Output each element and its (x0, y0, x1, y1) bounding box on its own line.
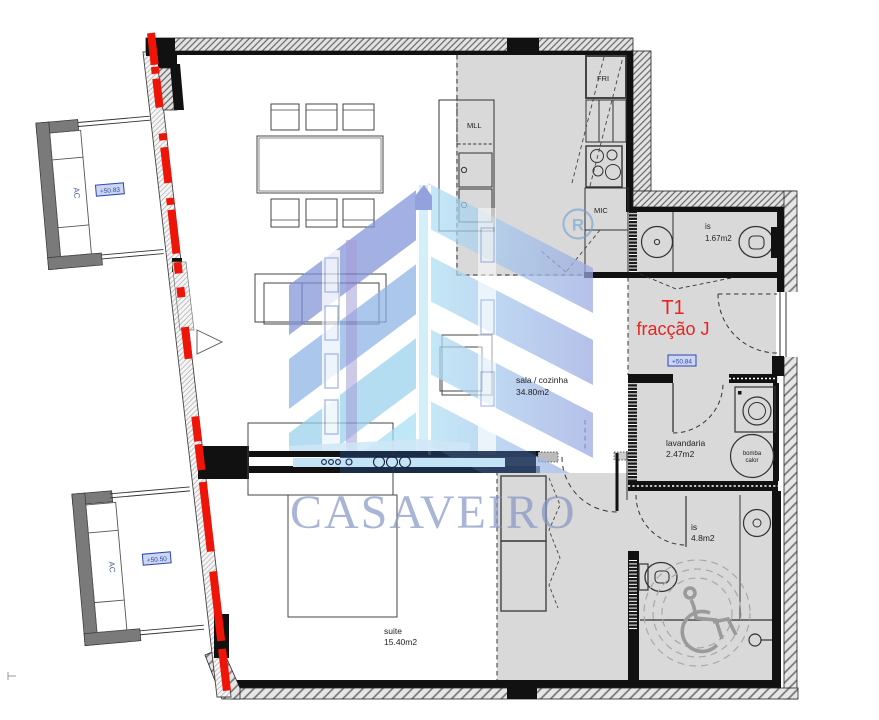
svg-text:MLL: MLL (467, 121, 482, 130)
svg-text:MIC: MIC (594, 206, 608, 215)
svg-text:4.8m2: 4.8m2 (691, 533, 715, 543)
svg-text:2.47m2: 2.47m2 (666, 449, 695, 459)
svg-text:is: is (705, 222, 711, 231)
svg-text:15.40m2: 15.40m2 (384, 637, 417, 647)
svg-text:sala / cozinha: sala / cozinha (516, 375, 568, 385)
svg-text:1.67m2: 1.67m2 (705, 234, 732, 243)
svg-text:calor: calor (745, 458, 758, 464)
svg-text:CASAVEIRO: CASAVEIRO (290, 486, 577, 539)
svg-text:is: is (691, 522, 697, 532)
svg-text:T1: T1 (661, 297, 684, 319)
svg-text:R: R (572, 216, 584, 235)
svg-text:fracção J: fracção J (636, 319, 709, 339)
svg-text:bomba: bomba (743, 451, 762, 457)
svg-text:suite: suite (384, 626, 402, 636)
svg-text:AC: AC (107, 561, 117, 573)
svg-text:lavandaria: lavandaria (666, 438, 705, 448)
svg-text:34.80m2: 34.80m2 (516, 387, 549, 397)
svg-text:AC: AC (72, 187, 82, 199)
svg-text:FRI: FRI (597, 74, 609, 83)
svg-text:+50.84: +50.84 (672, 359, 692, 366)
